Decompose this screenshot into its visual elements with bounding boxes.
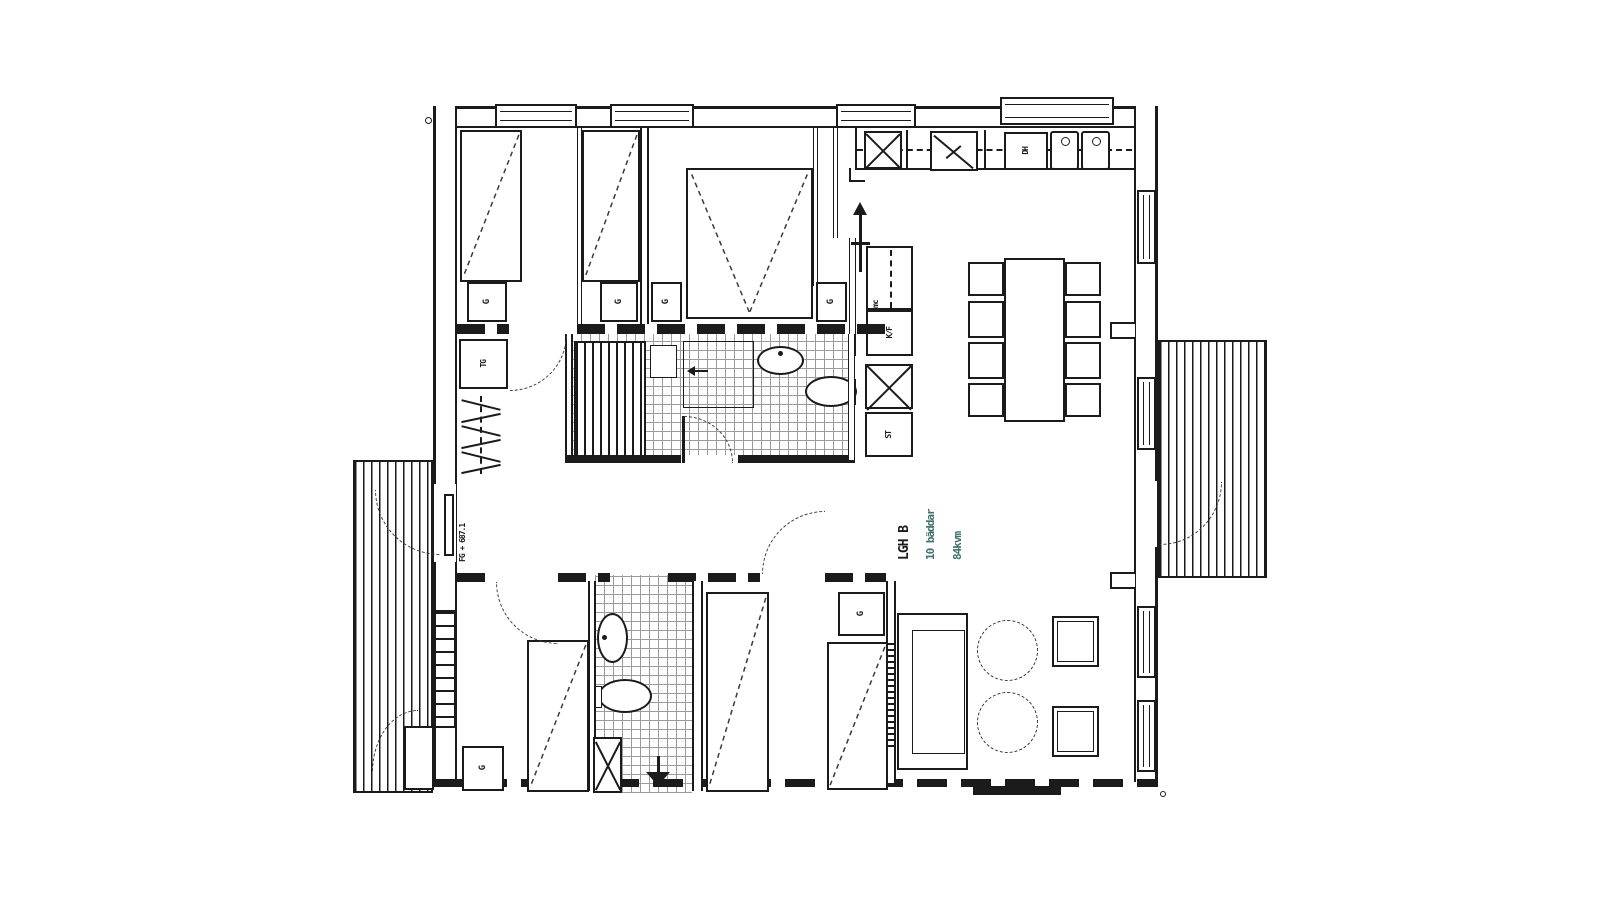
entry-arrow-head [853, 202, 867, 215]
wall-hatch [888, 641, 894, 747]
counter-step [849, 168, 865, 182]
window [1137, 377, 1156, 450]
radiator [1110, 322, 1135, 339]
floor-drain-stem [657, 756, 660, 772]
wardrobe-label: G [857, 612, 866, 616]
bed-diagonal [708, 594, 767, 790]
wardrobe-label: G [483, 300, 492, 304]
corner-marker [425, 117, 432, 124]
partition-wall [833, 128, 838, 238]
drying-cabinet-label: TG [480, 360, 488, 368]
coat-rail [480, 396, 482, 474]
partition-wall [640, 128, 649, 324]
dining-chair [1065, 383, 1101, 417]
hall-wall-dashed [825, 573, 886, 582]
dishwasher-box: DH [1004, 132, 1048, 170]
washbasin-icon [757, 346, 804, 375]
bed-diagonal [584, 132, 638, 280]
entry-arrow-crossbar [851, 242, 870, 245]
door-swing-arc [496, 582, 558, 644]
apartment-title: LGH B [898, 498, 911, 560]
bathroom-wall [565, 334, 573, 463]
wardrobe-label: G [662, 300, 671, 304]
cleaning-closet-label: ST [885, 431, 893, 439]
appliance-x-box [864, 131, 902, 169]
cabinet-divider [890, 250, 892, 308]
floor-drain-icon [646, 772, 670, 786]
bathroom-wall [848, 334, 855, 460]
cleaning-closet-box: ST [865, 412, 913, 457]
beds-label: 10 bäddar [925, 472, 936, 560]
wardrobe-box: G [462, 746, 504, 791]
bath-shelf [650, 345, 677, 378]
counter-divider [984, 130, 986, 170]
wardrobe-label: G [479, 766, 488, 770]
shower-arm [694, 370, 708, 372]
bed-diagonal [529, 642, 587, 790]
stool [1052, 616, 1099, 667]
window [610, 104, 694, 128]
window [1137, 606, 1156, 678]
window [1137, 700, 1156, 772]
dishwasher-label: DH [1022, 147, 1030, 155]
window [1000, 97, 1114, 125]
window [836, 104, 916, 128]
bed-diagonal [462, 132, 520, 280]
dining-chair [968, 342, 1004, 379]
counter-divider [906, 130, 908, 170]
door-swing-arc [510, 334, 567, 391]
dining-table [1004, 258, 1065, 422]
cooktop [930, 131, 978, 171]
microwave-label: mc [872, 282, 880, 308]
window [495, 104, 577, 128]
entry-door-leaf [444, 494, 454, 556]
hall-wall-dashed [558, 573, 610, 582]
bed-diagonal [829, 644, 886, 788]
dining-chair [968, 262, 1004, 296]
window [434, 610, 456, 728]
sofa-seat [912, 630, 965, 754]
partition-wall [886, 581, 896, 783]
wardrobe-box: G [816, 282, 847, 322]
appliance-x-box [865, 364, 913, 409]
radiator [1110, 572, 1135, 589]
dining-chair [968, 383, 1004, 417]
door-swing-arc [762, 511, 825, 574]
shower-head-icon [687, 366, 695, 376]
microwave-box: mc [866, 246, 913, 310]
kitchen-sink [1050, 131, 1079, 170]
hall-wall-dashed [668, 573, 760, 582]
hall-wall-dashed [457, 573, 497, 582]
single-bed [460, 130, 522, 282]
single-bed [527, 640, 589, 792]
wardrobe-box: G [600, 282, 638, 322]
toilet-icon [598, 679, 652, 713]
bathroom-wall [692, 581, 703, 791]
floor-plan: FG + 687.1 G G G G DH [0, 0, 1600, 903]
single-bed [582, 130, 640, 282]
double-bed [686, 168, 813, 319]
window [1137, 190, 1156, 264]
kitchen-sink [1081, 131, 1110, 170]
area-label: 84kvm [952, 500, 963, 560]
dining-chair [1065, 342, 1101, 379]
bed-diagonals [688, 170, 811, 317]
dining-chair [1065, 301, 1101, 338]
dining-chair [1065, 262, 1101, 296]
corner-marker [1160, 791, 1166, 797]
wardrobe-box: G [467, 282, 507, 322]
wardrobe-box: G [651, 282, 682, 322]
round-table [977, 692, 1038, 753]
sauna-benches [574, 341, 646, 459]
drying-cabinet-box: TG [459, 339, 508, 389]
deck-door-opening [1136, 481, 1157, 547]
single-bed [706, 592, 769, 792]
wardrobe-label: G [827, 300, 836, 304]
partition-wall [813, 128, 818, 286]
appliance-x-box [593, 737, 622, 793]
tv-bench [973, 786, 1061, 795]
stool [1052, 706, 1099, 757]
wardrobe-label: G [615, 300, 624, 304]
dining-chair [968, 301, 1004, 338]
wardrobe-box: G [838, 592, 885, 636]
washbasin-icon [597, 613, 628, 663]
toilet-tank [595, 686, 602, 708]
floor-level-label: FG + 687.1 [459, 482, 467, 562]
single-bed [827, 642, 888, 790]
round-table [977, 620, 1038, 681]
